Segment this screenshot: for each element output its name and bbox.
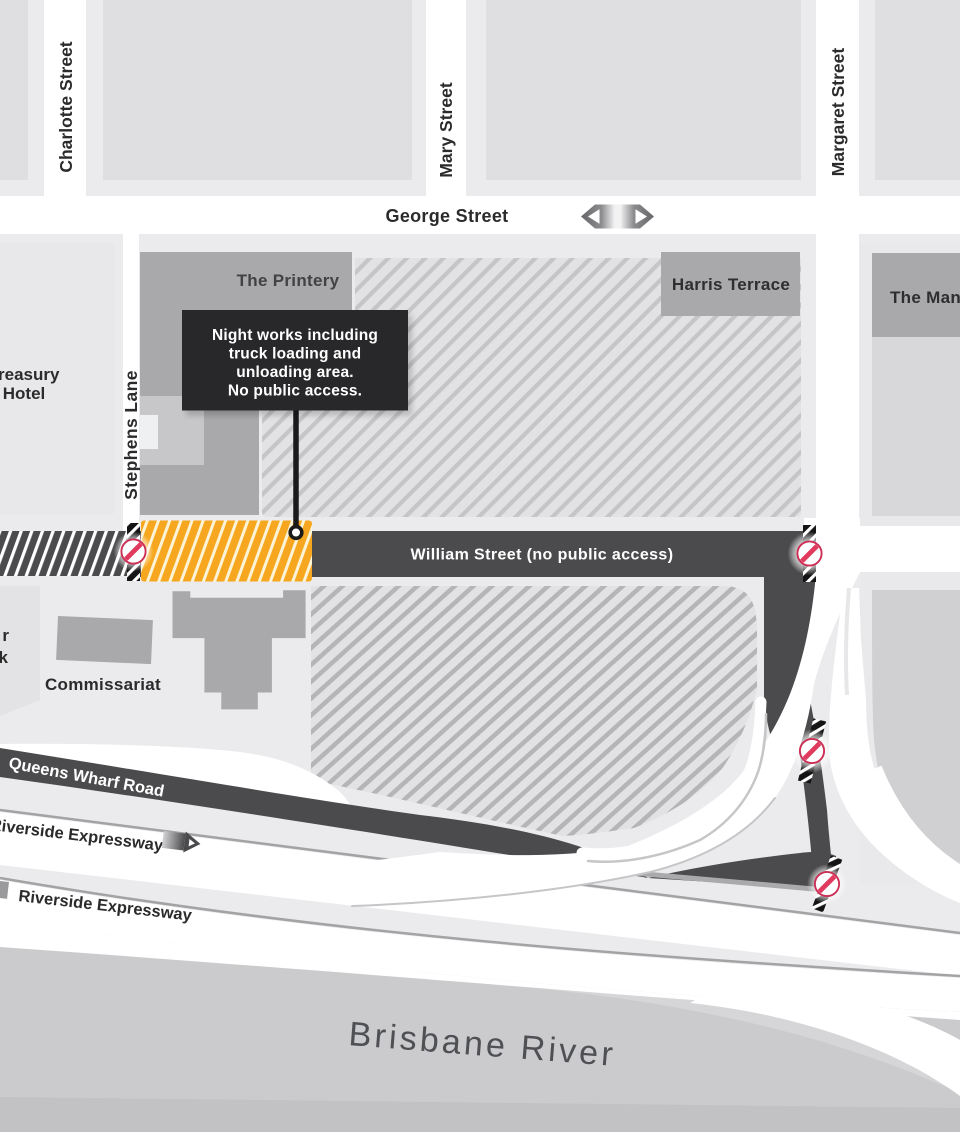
svg-text:No public access.: No public access.: [228, 383, 362, 400]
svg-text:Margaret Street: Margaret Street: [828, 48, 848, 177]
svg-text:Night works including: Night works including: [212, 327, 378, 344]
svg-text:Mary Street: Mary Street: [436, 82, 456, 177]
svg-text:r: r: [2, 626, 9, 645]
svg-text:Charlotte Street: Charlotte Street: [56, 41, 76, 172]
svg-text:George Street: George Street: [386, 206, 509, 226]
svg-text:Stephens Lane: Stephens Lane: [121, 370, 141, 500]
svg-text:truck loading and: truck loading and: [229, 346, 362, 363]
svg-text:Hotel: Hotel: [3, 384, 46, 403]
svg-text:William Street (no public acce: William Street (no public access): [411, 547, 674, 564]
svg-text:Treasury: Treasury: [0, 365, 60, 384]
svg-text:unloading area.: unloading area.: [236, 364, 354, 381]
svg-text:Commissariat: Commissariat: [45, 675, 161, 694]
svg-text:The Printery: The Printery: [237, 271, 340, 290]
svg-text:The Mansions: The Mansions: [890, 288, 960, 307]
svg-text:Harris Terrace: Harris Terrace: [672, 275, 790, 294]
svg-text:k: k: [0, 648, 9, 667]
